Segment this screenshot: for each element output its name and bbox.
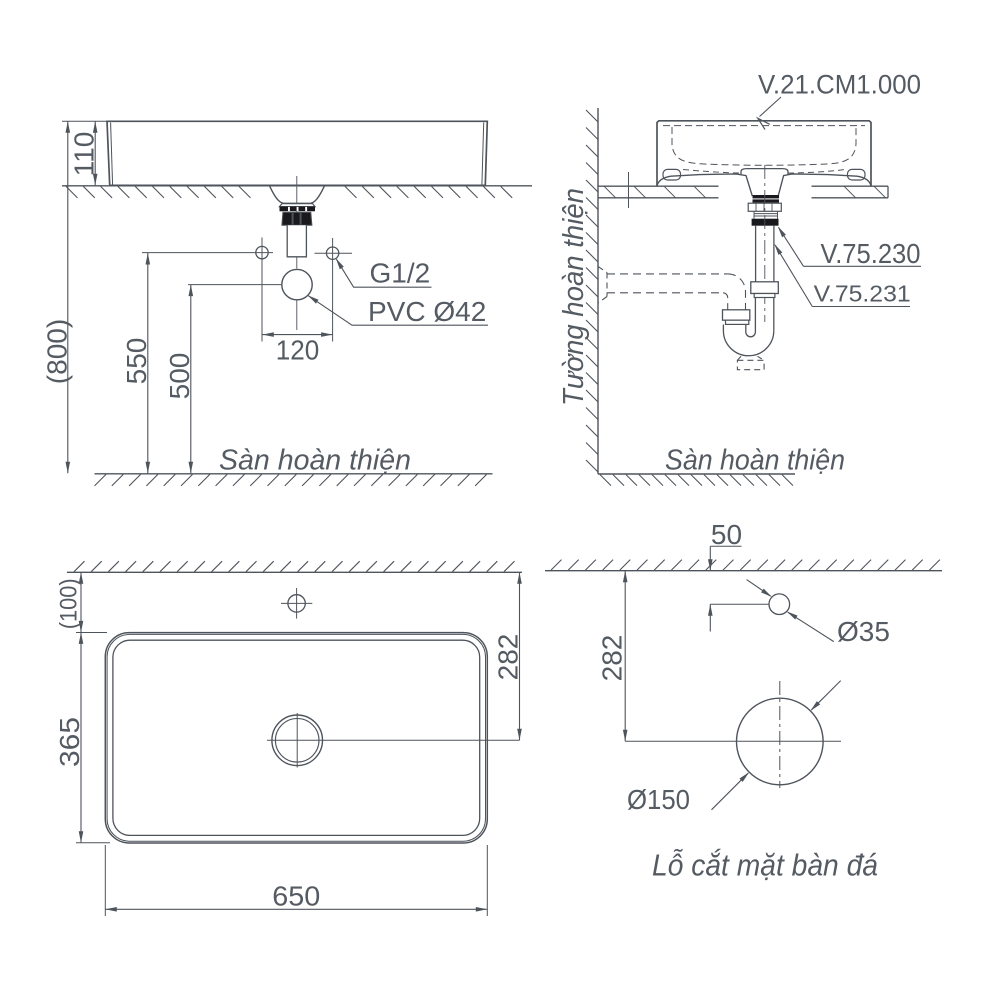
- svg-text:V.75.231: V.75.231: [814, 281, 911, 307]
- svg-text:(800): (800): [42, 319, 73, 384]
- svg-text:282: 282: [597, 635, 628, 682]
- svg-text:Ø35: Ø35: [837, 616, 890, 647]
- svg-text:G1/2: G1/2: [370, 258, 431, 289]
- svg-text:PVC Ø42: PVC Ø42: [368, 296, 486, 327]
- svg-text:500: 500: [164, 353, 195, 400]
- svg-text:650: 650: [272, 881, 320, 912]
- svg-text:Lỗ cắt mặt bàn đá: Lỗ cắt mặt bàn đá: [652, 848, 878, 883]
- svg-text:V.21.CM1.000: V.21.CM1.000: [758, 70, 921, 100]
- svg-text:365: 365: [54, 717, 85, 767]
- svg-text:550: 550: [121, 338, 152, 385]
- svg-text:50: 50: [711, 519, 742, 550]
- svg-text:110: 110: [69, 132, 100, 177]
- svg-text:Sàn hoàn thiện: Sàn hoàn thiện: [665, 445, 845, 477]
- svg-text:V.75.230: V.75.230: [821, 238, 921, 269]
- svg-text:(100): (100): [56, 578, 83, 629]
- svg-text:120: 120: [276, 335, 320, 366]
- svg-text:282: 282: [493, 634, 524, 681]
- svg-text:Ø150: Ø150: [627, 784, 690, 815]
- svg-text:Tường hoàn thiện: Tường hoàn thiện: [558, 188, 590, 406]
- svg-text:Sàn hoàn thiện: Sàn hoàn thiện: [219, 445, 411, 477]
